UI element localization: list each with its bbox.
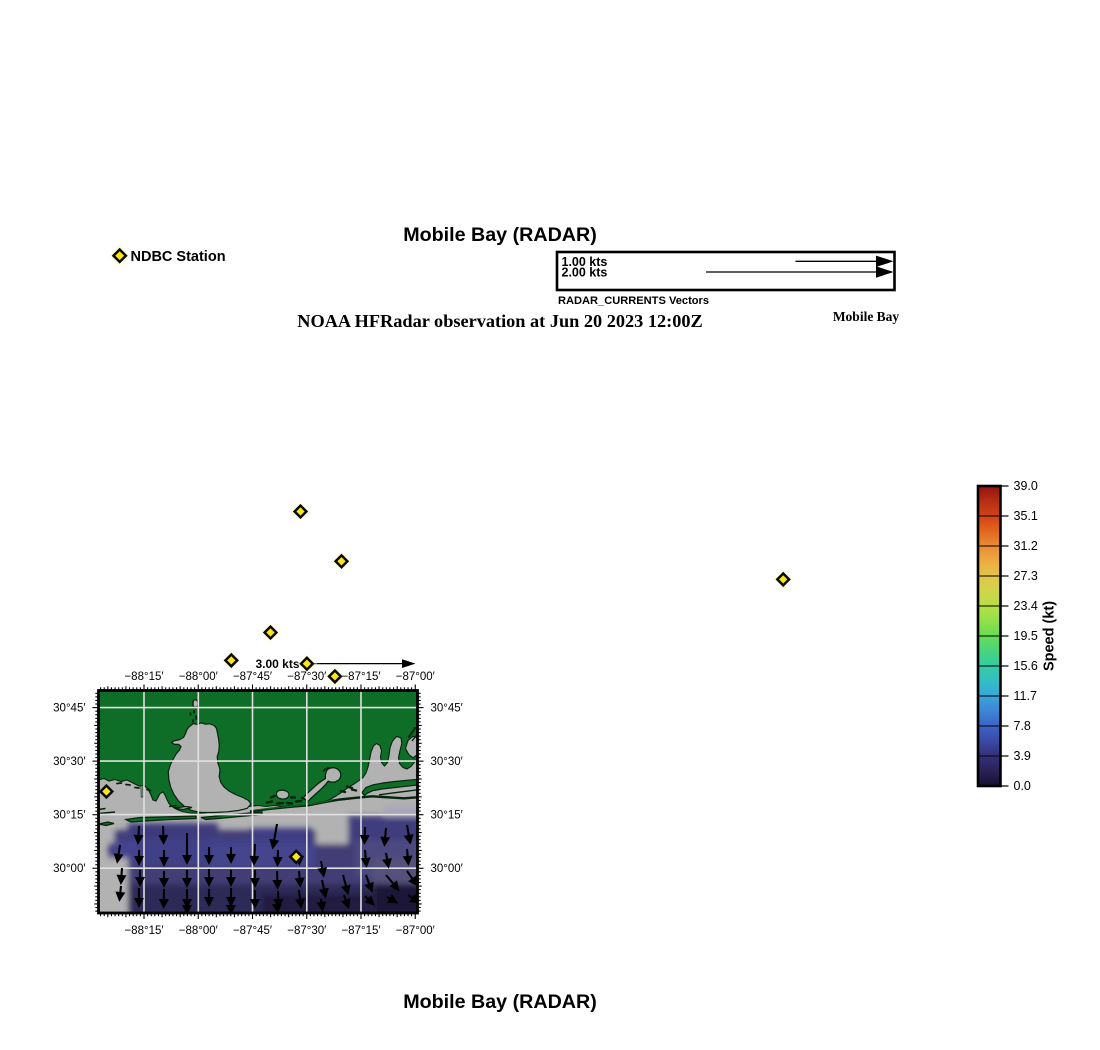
svg-text:39.0: 39.0 <box>1014 479 1038 493</box>
svg-text:3.00 kts: 3.00 kts <box>255 657 299 671</box>
svg-text:−88°00′: −88°00′ <box>179 671 218 683</box>
svg-text:−87°00′: −87°00′ <box>396 925 435 937</box>
svg-text:0.0: 0.0 <box>1014 779 1031 793</box>
svg-text:−87°15′: −87°15′ <box>341 925 380 937</box>
svg-text:30°30′: 30°30′ <box>431 756 463 768</box>
svg-text:NOAA HFRadar observation at Ju: NOAA HFRadar observation at Jun 20 2023 … <box>297 311 702 331</box>
svg-text:30°00′: 30°00′ <box>431 863 463 875</box>
svg-text:30°00′: 30°00′ <box>53 863 85 875</box>
svg-text:3.9: 3.9 <box>1014 749 1031 763</box>
svg-text:−88°00′: −88°00′ <box>179 925 218 937</box>
svg-text:−87°30′: −87°30′ <box>287 925 326 937</box>
svg-text:−87°30′: −87°30′ <box>287 671 326 683</box>
svg-text:11.7: 11.7 <box>1014 689 1037 703</box>
svg-text:19.5: 19.5 <box>1014 629 1038 643</box>
svg-text:27.3: 27.3 <box>1014 569 1038 583</box>
svg-text:NDBC Station: NDBC Station <box>131 249 226 265</box>
svg-text:Mobile Bay (RADAR): Mobile Bay (RADAR) <box>403 224 597 246</box>
svg-text:−87°45′: −87°45′ <box>233 925 272 937</box>
svg-text:RADAR_CURRENTS Vectors: RADAR_CURRENTS Vectors <box>558 295 709 307</box>
svg-text:35.1: 35.1 <box>1014 509 1038 523</box>
svg-text:30°45′: 30°45′ <box>431 703 463 715</box>
svg-text:−87°00′: −87°00′ <box>396 671 435 683</box>
svg-text:30°30′: 30°30′ <box>53 756 85 768</box>
svg-text:−88°15′: −88°15′ <box>124 671 163 683</box>
svg-text:23.4: 23.4 <box>1014 599 1038 613</box>
svg-text:7.8: 7.8 <box>1014 719 1031 733</box>
svg-text:31.2: 31.2 <box>1014 539 1038 553</box>
svg-text:30°45′: 30°45′ <box>53 703 85 715</box>
svg-text:−87°45′: −87°45′ <box>233 671 272 683</box>
svg-text:30°15′: 30°15′ <box>431 810 463 822</box>
svg-text:−88°15′: −88°15′ <box>124 925 163 937</box>
svg-text:30°15′: 30°15′ <box>53 810 85 822</box>
svg-text:Mobile Bay (RADAR): Mobile Bay (RADAR) <box>403 991 597 1013</box>
svg-text:Speed (kt): Speed (kt) <box>1042 601 1058 671</box>
svg-text:Mobile Bay: Mobile Bay <box>833 309 900 324</box>
svg-text:2.00 kts: 2.00 kts <box>562 266 608 280</box>
svg-text:15.6: 15.6 <box>1014 659 1038 673</box>
svg-text:−87°15′: −87°15′ <box>341 671 380 683</box>
